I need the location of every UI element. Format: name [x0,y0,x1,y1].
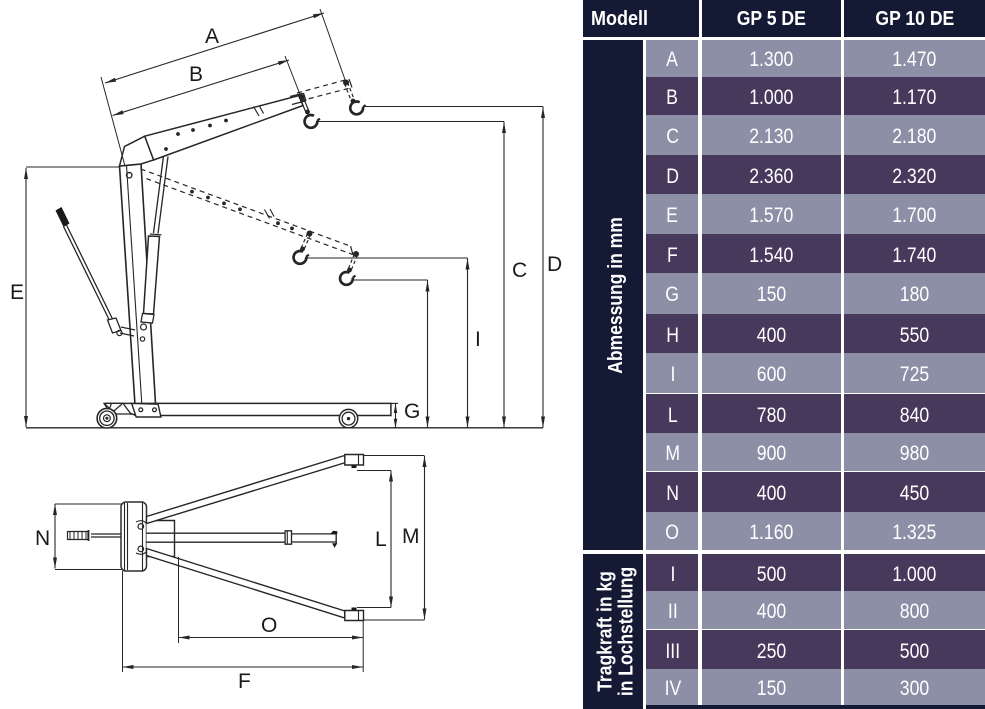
svg-text:E: E [10,281,24,304]
svg-text:F: F [238,670,251,693]
svg-text:I: I [475,328,481,351]
svg-text:O: O [261,614,277,637]
svg-text:G: G [404,400,420,423]
svg-text:L: L [375,528,387,551]
svg-text:B: B [189,63,203,86]
svg-text:M: M [402,525,420,548]
svg-text:D: D [547,253,562,276]
svg-text:A: A [205,25,219,48]
svg-text:C: C [512,259,527,282]
svg-text:N: N [35,527,50,550]
